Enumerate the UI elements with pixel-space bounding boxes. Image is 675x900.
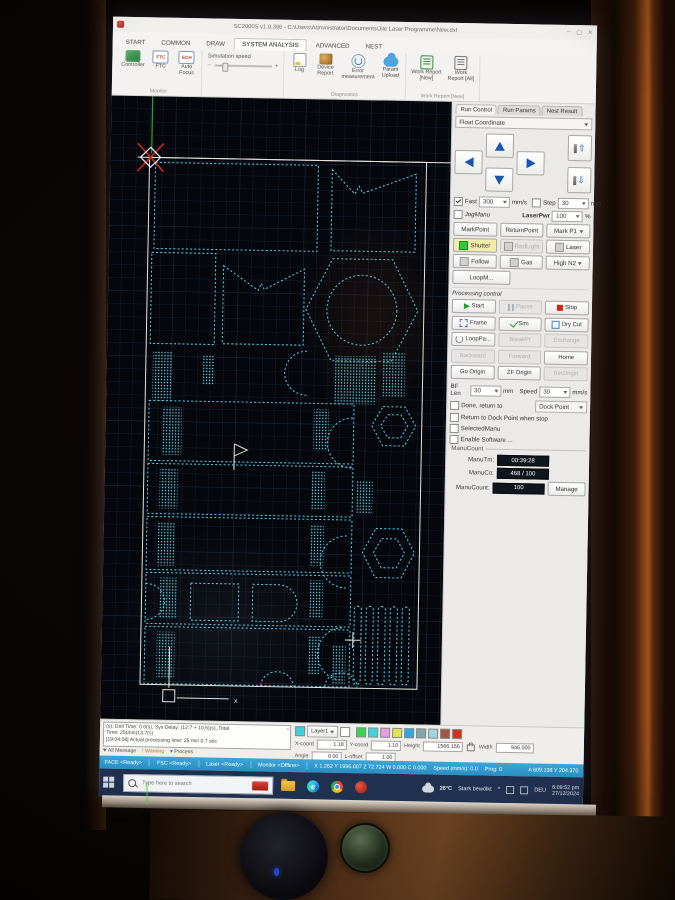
mark-p1-dropdown[interactable]: Mark P1 <box>547 224 591 239</box>
arrow-left-icon <box>464 157 473 167</box>
processing-button-retorigin[interactable]: RetOrigin <box>544 367 588 382</box>
shutter-toggle[interactable]: Shutter <box>453 238 497 253</box>
light-leak <box>146 782 148 804</box>
work-report-all-button[interactable]: Work Report [All] <box>447 56 474 83</box>
processing-button-start[interactable]: Start <box>452 299 496 314</box>
processing-button-looppa[interactable]: LoopPa... <box>451 332 495 347</box>
laser-app-icon[interactable] <box>355 781 367 793</box>
enable-software-checkbox[interactable] <box>449 435 458 444</box>
system-tray: 26°C Stark bewölkt ^ DEU 6:09:52 pm 27/1… <box>421 782 579 797</box>
redlight-indicator <box>504 241 513 250</box>
device-report-icon <box>319 53 332 64</box>
jog-right-button[interactable] <box>516 151 544 176</box>
filter-all-messages[interactable]: All Message <box>103 748 137 755</box>
gas-indicator <box>510 257 519 266</box>
y-coord-field[interactable]: 1.10 <box>371 740 401 751</box>
device-report-button[interactable]: Device Report <box>315 53 335 77</box>
gas-type-dropdown[interactable]: High N2 <box>546 256 590 271</box>
simulation-speed-slider[interactable]: – + <box>208 62 279 69</box>
step-spinner[interactable]: 30 <box>558 198 589 210</box>
chrome-browser-icon[interactable] <box>331 781 343 793</box>
controller-icon <box>126 50 141 62</box>
ambient-warm-glow <box>591 0 675 900</box>
play-icon <box>463 303 469 309</box>
processing-button-backward[interactable]: Backward <box>451 348 495 363</box>
ribbon-group-monitor: Controller FTC FTC ECH Auto Focus Monito… <box>116 49 203 97</box>
filter-process[interactable]: ▾ Process <box>170 749 193 755</box>
minimize-button[interactable]: – <box>567 29 570 36</box>
ribbon-group-simulation: Simulation speed – + <box>202 50 285 97</box>
status-face: FACE <Ready> <box>104 759 142 766</box>
auto-focus-icon: ECH <box>179 51 195 64</box>
status-laser: Laser <Ready> <box>206 761 243 768</box>
manu-time-value: 00:39:28 <box>497 455 549 467</box>
layer-color-swatch-6[interactable] <box>416 728 426 738</box>
edge-browser-icon[interactable]: e <box>307 780 319 792</box>
coordinate-mode-dropdown[interactable]: Float Coordinate <box>455 116 592 131</box>
search-input[interactable] <box>140 779 248 789</box>
chevron-down-icon <box>330 730 334 733</box>
processing-button-exchange[interactable]: Exchange <box>545 334 589 349</box>
layer-color-swatch-4[interactable] <box>392 728 402 738</box>
manu-total-value: 100 <box>493 482 545 494</box>
processing-button-go-origin[interactable]: Go Origin <box>451 365 495 380</box>
chevron-down-icon <box>576 215 580 218</box>
led-indicator <box>274 868 279 876</box>
frame-icon <box>460 319 468 327</box>
slider-thumb[interactable] <box>222 62 228 71</box>
dry-icon <box>552 320 560 328</box>
follow-toggle[interactable]: Follow <box>453 254 497 269</box>
done-return-checkbox[interactable] <box>450 400 459 409</box>
tab-start[interactable]: START <box>119 37 153 49</box>
height-field[interactable]: 1566.156 <box>423 741 463 752</box>
file-explorer-icon[interactable] <box>281 781 295 791</box>
status-monitor: Monitor <Offline> <box>258 762 299 769</box>
chevron-down-icon <box>579 230 583 233</box>
error-measurement-icon <box>351 54 365 68</box>
cloud-upload-icon <box>383 57 398 67</box>
laser-toggle[interactable]: Laser <box>546 240 590 255</box>
ribbon-group-diagnostics: Log Device Report Error measurement Para… <box>284 52 407 100</box>
laser-power-spinner[interactable]: 100 <box>552 211 583 223</box>
layer-select-button[interactable]: Layer1 <box>307 725 338 738</box>
check-icon <box>510 318 519 327</box>
processing-button-zf-origin[interactable]: ZF Origin <box>497 366 541 381</box>
monitor-screen: SC2000S v1.0.396 - C:\Users\Administrato… <box>99 17 597 806</box>
ribbon-group-work-report: Work Report [New] Work Report [All] Work… <box>406 54 481 101</box>
layer-color-swatch-2[interactable] <box>368 727 378 737</box>
nozzle-icon <box>573 176 576 185</box>
chevron-down-icon <box>103 749 107 752</box>
chevron-down-icon <box>503 201 507 204</box>
processing-button-grid: StartPauseStopFrameSimDry CutLoopPa...Br… <box>451 299 589 381</box>
chevron-down-icon <box>578 262 582 265</box>
status-prog: Prog: 0 <box>485 766 502 772</box>
follow-indicator <box>460 257 469 266</box>
ftc-button[interactable]: FTC FTC <box>151 50 171 70</box>
app-icon <box>117 21 124 28</box>
layer-color-swatch-8[interactable] <box>440 729 450 739</box>
status-fsc: FSC <Ready> <box>157 760 191 767</box>
log-scroll-up[interactable]: ˄ <box>286 727 289 733</box>
jogmanu-checkbox[interactable] <box>454 210 463 219</box>
close-button[interactable]: ✕ <box>588 29 593 36</box>
nozzle-up-button[interactable]: ⇧ <box>568 135 592 161</box>
chevron-down-icon <box>579 406 583 409</box>
layer-color-swatch-9[interactable] <box>452 729 462 739</box>
nozzle-icon <box>574 144 577 153</box>
arrow-right-icon <box>526 158 535 168</box>
layer-color-swatch-1[interactable] <box>356 727 366 737</box>
arrow-down-icon <box>494 175 504 184</box>
jog-pad: ⇧ ⇩ <box>454 130 592 196</box>
x-coord-field[interactable]: 1.18 <box>317 739 347 750</box>
redlight-toggle[interactable]: RedLight <box>500 239 544 254</box>
status-speed: Speed (mm/s): 0.0 <box>433 765 477 772</box>
returnpoint-button[interactable]: ReturnPoint <box>500 223 544 238</box>
stop-icon <box>557 305 563 311</box>
chevron-down-icon <box>584 123 588 126</box>
network-icon[interactable] <box>506 786 514 794</box>
fast-speed-spinner[interactable]: 300 <box>479 196 510 208</box>
log-icon <box>293 53 306 67</box>
simulation-speed-label: Simulation speed <box>208 53 279 60</box>
processing-button-breakpt[interactable]: BreakPt <box>498 333 542 348</box>
work-report-group-label: Work Report [New] <box>411 92 474 101</box>
current-layer-swatch[interactable] <box>295 726 305 736</box>
fast-checkbox[interactable] <box>454 197 463 206</box>
divider <box>452 287 589 291</box>
filter-warning[interactable]: ! Warning <box>142 748 164 754</box>
controller-button[interactable]: Controller <box>121 50 145 69</box>
language-indicator[interactable]: DEU <box>534 787 546 793</box>
return-dock-checkbox[interactable] <box>450 413 459 422</box>
chevron-down-icon <box>494 389 498 392</box>
pause-icon <box>508 303 510 310</box>
work-report-new-button[interactable]: Work Report [New] <box>411 55 442 82</box>
wooden-console <box>149 809 675 900</box>
error-measurement-button[interactable]: Error measurement <box>341 54 374 81</box>
weather-icon <box>422 785 434 792</box>
processing-button-sim[interactable]: Sim <box>498 316 542 331</box>
status-coordinates: X 1.262 Y 1996.007 Z 72.724 W 0.000 C 0.… <box>314 763 426 771</box>
jog-down-button[interactable] <box>485 167 513 192</box>
status-position: A 609.138 Y 204.370 <box>528 767 578 774</box>
processing-button-forward[interactable]: Forward <box>498 349 542 364</box>
processing-button-stop[interactable]: Stop <box>545 301 589 316</box>
start-button[interactable] <box>103 777 115 789</box>
tab-nest[interactable]: NEST <box>358 41 389 53</box>
shutter-on-indicator <box>459 241 468 250</box>
step-checkbox[interactable] <box>532 198 541 207</box>
volume-icon[interactable] <box>520 786 528 794</box>
gas-toggle[interactable]: Gas <box>499 255 543 270</box>
jog-left-button[interactable] <box>454 150 482 175</box>
maximize-button[interactable]: ▢ <box>576 29 582 36</box>
loop-icon <box>455 335 463 343</box>
search-icon <box>128 779 136 787</box>
tab-advanced[interactable]: ADVANCED <box>308 40 356 52</box>
tab-run-params[interactable]: Run Params <box>498 105 541 116</box>
pinned-app-logo <box>252 781 268 790</box>
ftc-icon: FTC <box>153 50 169 63</box>
panel-tab-strip: Run Control Run Params Nest Result <box>455 104 592 117</box>
chevron-down-icon <box>563 390 567 393</box>
tab-draw[interactable]: DRAW <box>199 38 232 50</box>
markpoint-button[interactable]: MarkPoint <box>453 222 497 237</box>
nozzle-down-button[interactable]: ⇩ <box>567 167 591 193</box>
processing-button-home[interactable]: Home <box>544 350 588 365</box>
physical-knob-dark <box>240 812 328 900</box>
layer-color-swatches <box>356 727 462 739</box>
auto-focus-button[interactable]: ECH Auto Focus <box>176 51 196 77</box>
work-report-all-icon <box>454 56 467 70</box>
manage-button[interactable]: Manage <box>547 482 585 497</box>
manu-count-value: 468 / 100 <box>497 468 549 480</box>
weather-temp[interactable]: 26°C <box>440 786 453 792</box>
param-upload-button[interactable]: Param Upload <box>380 55 400 80</box>
cad-canvas[interactable]: x #cad-shapes .dash{fill:none;stroke:#57… <box>100 96 451 725</box>
jog-up-button[interactable] <box>486 133 514 158</box>
layer-color-swatch-5[interactable] <box>404 728 414 738</box>
manucount-group: ManuCount ManuTm: 00:39:28 ManuCo: 468 /… <box>448 448 586 497</box>
layer-color-swatch-7[interactable] <box>428 729 438 739</box>
selected-manu-checkbox[interactable] <box>450 424 459 433</box>
control-panel: Run Control Run Params Nest Result Float… <box>440 102 595 728</box>
photo-scene: SC2000S v1.0.396 - C:\Users\Administrato… <box>0 0 675 900</box>
work-report-new-icon <box>420 55 433 69</box>
physical-button-green <box>340 823 390 873</box>
message-log[interactable]: (s), Drill Time: 0.0(s), Sys Delay: (12.… <box>103 722 291 750</box>
processing-button-frame[interactable]: Frame <box>452 315 496 330</box>
laser-indicator <box>555 242 564 251</box>
tab-run-control[interactable]: Run Control <box>455 104 497 115</box>
chevron-down-icon <box>582 202 586 205</box>
loop-move-button[interactable]: LoopM... <box>452 270 510 285</box>
processing-button-pause[interactable]: Pause <box>498 300 542 315</box>
no-color-swatch[interactable] <box>340 727 350 737</box>
bf-len-spinner[interactable]: 30 <box>470 385 501 397</box>
width-field[interactable]: 946.000 <box>495 743 533 754</box>
arrow-up-icon <box>495 141 505 150</box>
tray-expand-caret[interactable]: ^ <box>498 787 501 793</box>
tab-common[interactable]: COMMON <box>154 37 197 49</box>
layer-color-swatch-3[interactable] <box>380 728 390 738</box>
processing-button-dry-cut[interactable]: Dry Cut <box>545 317 589 332</box>
log-button[interactable]: Log <box>289 53 309 74</box>
taskbar-clock[interactable]: 6:09:52 pm 27/12/2024 <box>552 785 579 798</box>
weather-text[interactable]: Stark bewölkt <box>458 786 492 793</box>
lock-ratio-icon[interactable] <box>467 744 475 751</box>
dock-point-dropdown[interactable]: Dock Point <box>535 400 587 413</box>
tab-nest-result[interactable]: Nest Result <box>542 106 583 117</box>
slider-track[interactable] <box>214 64 272 67</box>
processing-control-label: Processing control <box>452 291 589 300</box>
bf-speed-spinner[interactable]: 30 <box>539 386 570 398</box>
monitor-group-label: Monitor <box>121 87 197 96</box>
